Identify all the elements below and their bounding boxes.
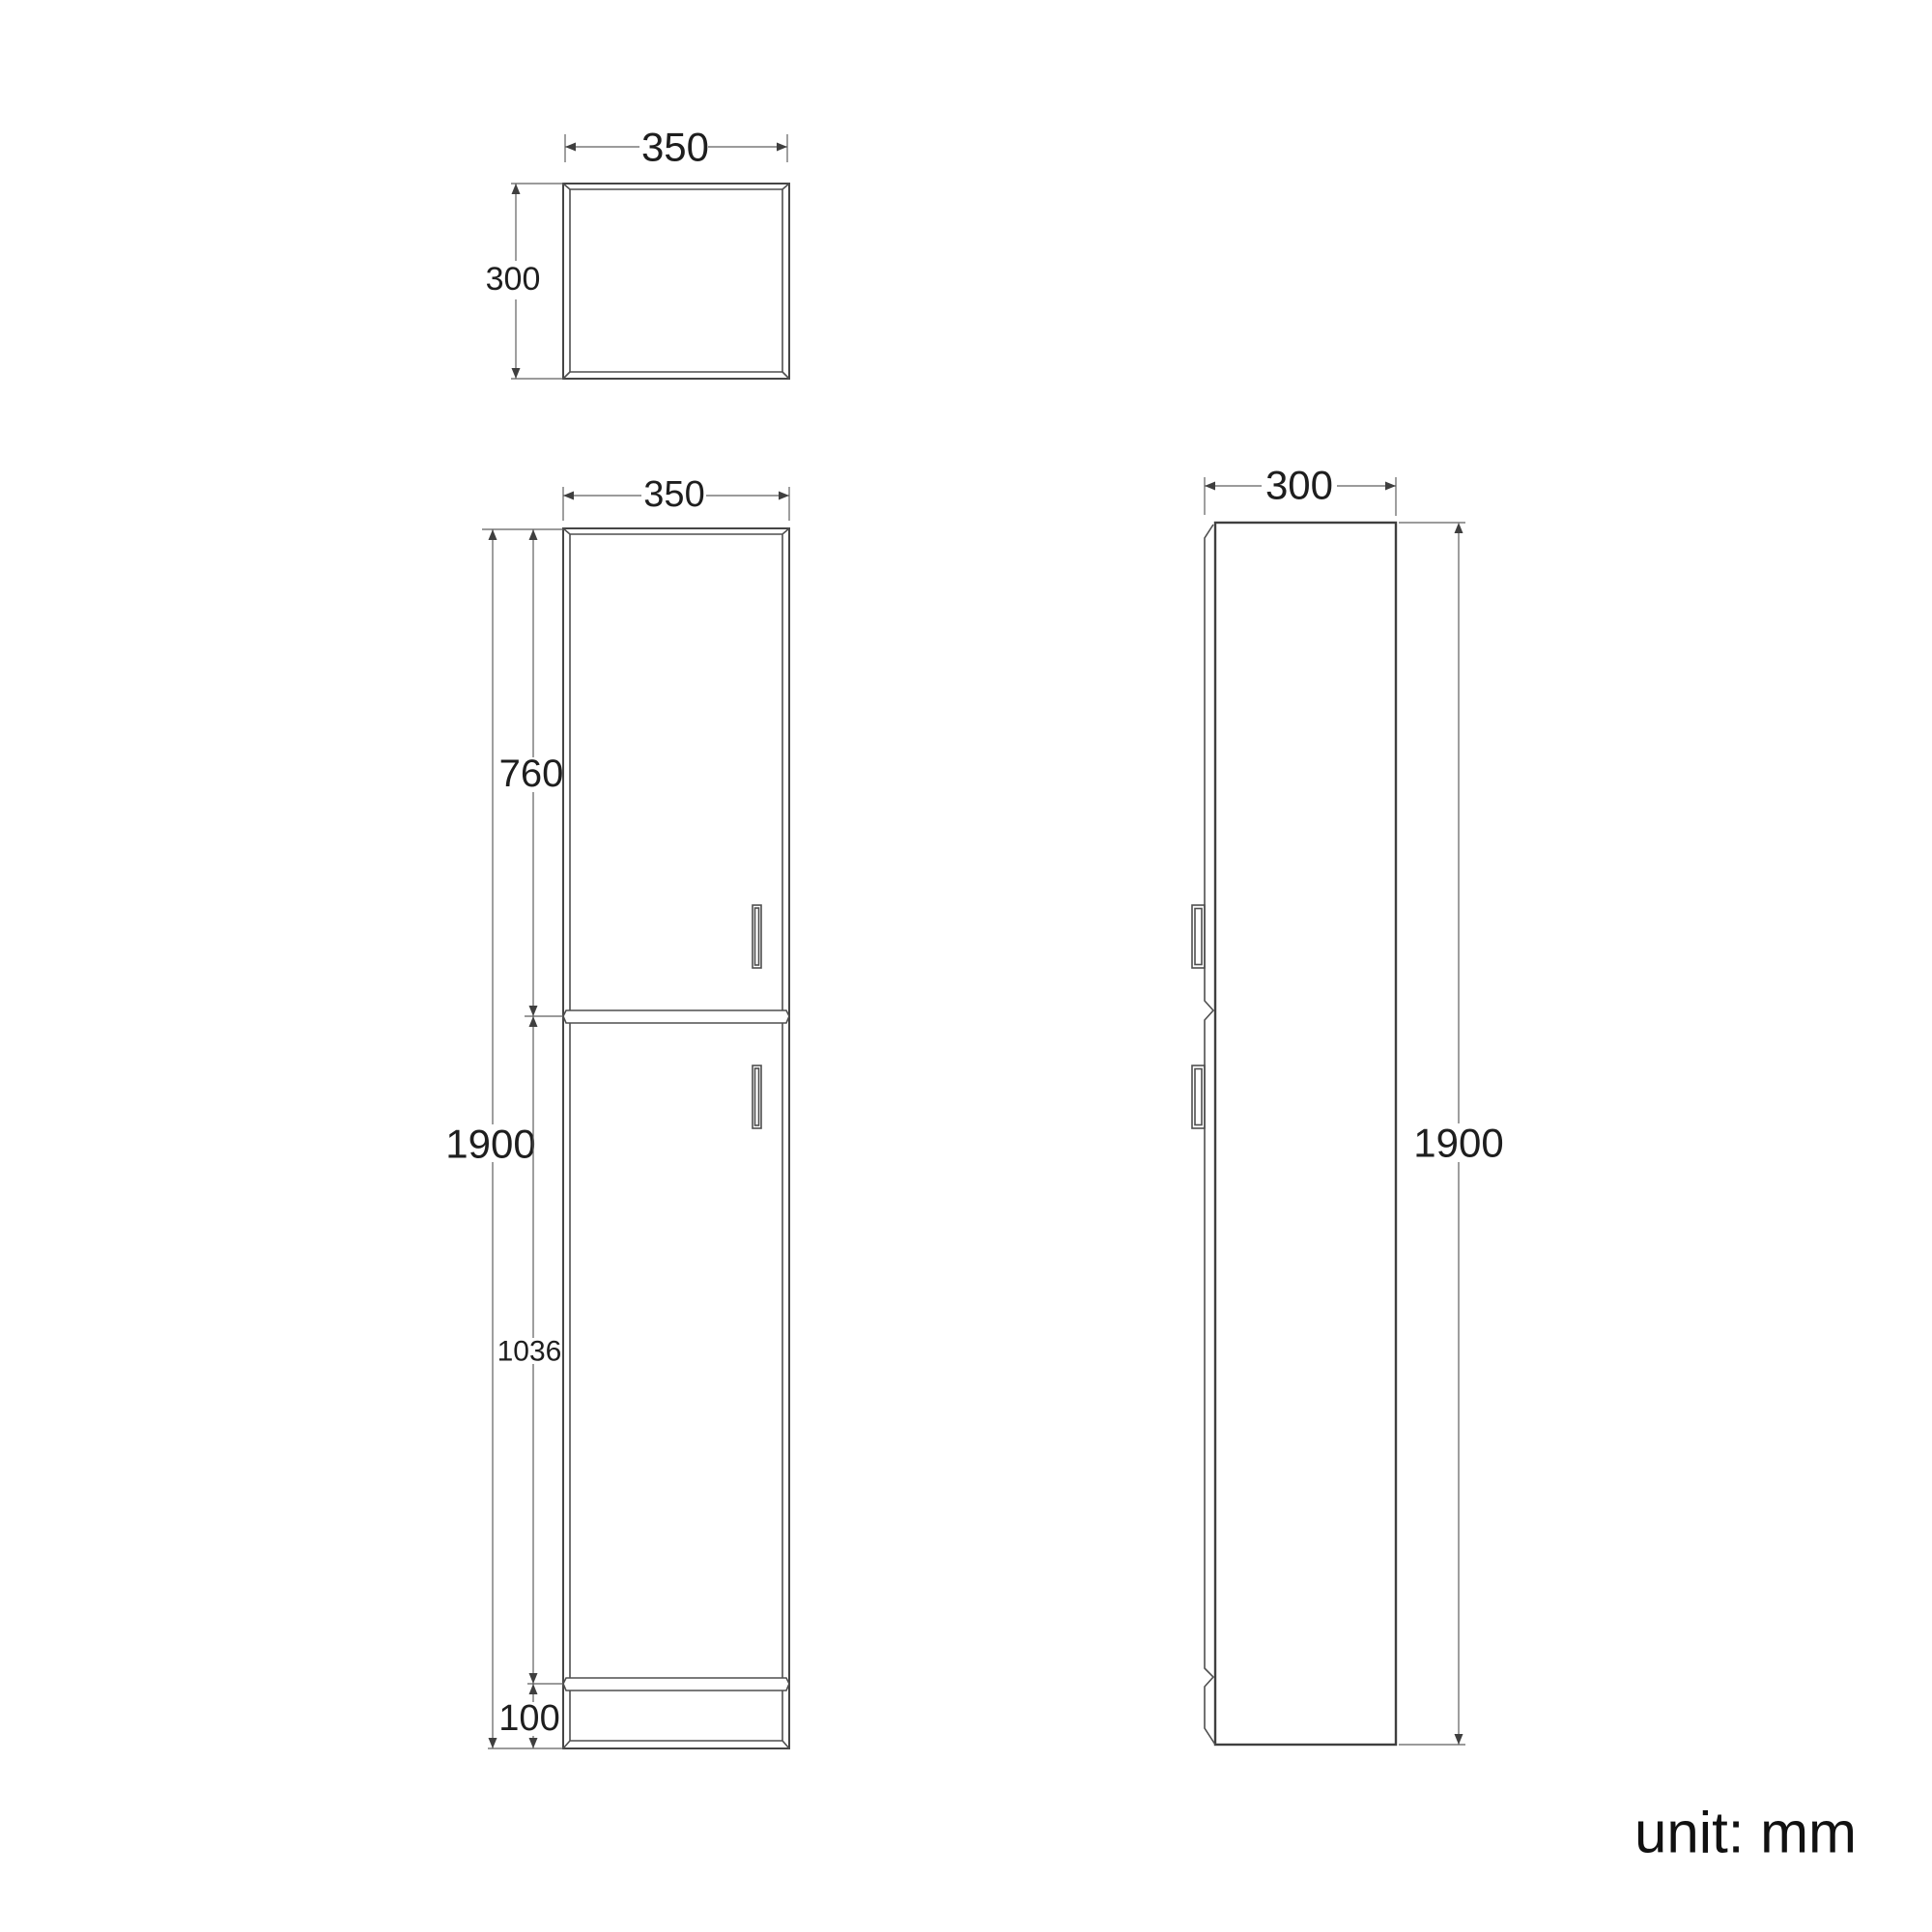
arrowhead-left bbox=[1205, 482, 1215, 491]
top-view-outline bbox=[563, 184, 789, 379]
arrowhead-left bbox=[565, 143, 576, 152]
arrowhead-up bbox=[489, 529, 497, 540]
handle-inner-line bbox=[755, 1068, 759, 1125]
top-view-corner-chamfers bbox=[563, 184, 789, 379]
top-view-inner-frame bbox=[570, 189, 782, 372]
front-view-lower-door-dimension: 1036 bbox=[497, 1016, 563, 1684]
arrowhead-down bbox=[1455, 1734, 1463, 1745]
handle-outline bbox=[1192, 905, 1205, 968]
side-view-depth-dimension: 300 bbox=[1205, 463, 1396, 517]
arrowhead-left bbox=[563, 492, 574, 500]
front-view-plinth-dimension: 100 bbox=[498, 1684, 559, 1748]
side-view-height-label: 1900 bbox=[1413, 1121, 1503, 1166]
front-view-height-label: 1900 bbox=[445, 1122, 535, 1167]
front-view-width-label: 350 bbox=[643, 474, 704, 515]
plinth-panel bbox=[563, 1690, 789, 1748]
door-divider bbox=[563, 1010, 789, 1023]
front-view-lower-door-label: 1036 bbox=[497, 1336, 562, 1368]
front-view-width-dimension: 350 bbox=[563, 474, 789, 521]
arrowhead-right bbox=[777, 143, 787, 152]
lower-door-panel bbox=[570, 1023, 782, 1678]
handle-outline bbox=[1192, 1065, 1205, 1128]
upper-door-handle bbox=[753, 905, 761, 968]
top-view: 350 300 bbox=[486, 125, 789, 380]
lower-door-handle bbox=[753, 1065, 761, 1128]
cabinet-technical-drawing: 350 300 bbox=[0, 0, 1932, 1932]
side-view-body-outline bbox=[1215, 523, 1396, 1745]
arrowhead-down bbox=[489, 1738, 497, 1748]
arrowhead-down bbox=[529, 1738, 538, 1748]
side-view-upper-handle-profile bbox=[1192, 905, 1205, 968]
handle-inner-line bbox=[1195, 909, 1202, 965]
arrowhead-up bbox=[529, 1016, 538, 1027]
arrowhead-up bbox=[529, 1684, 538, 1694]
front-view: 350 1900 760 1036 bbox=[445, 474, 789, 1748]
arrowhead-right bbox=[1385, 482, 1396, 491]
arrowhead-up bbox=[529, 529, 538, 540]
unit-note: unit: mm bbox=[1634, 1801, 1857, 1865]
front-view-upper-door-label: 760 bbox=[499, 753, 564, 795]
arrowhead-up bbox=[1455, 523, 1463, 533]
top-view-depth-label: 300 bbox=[486, 261, 541, 298]
plinth-divider bbox=[563, 1678, 789, 1690]
side-view-door-front-profile bbox=[1205, 525, 1215, 1745]
arrowhead-down bbox=[529, 1673, 538, 1684]
top-view-depth-dimension: 300 bbox=[486, 184, 563, 379]
front-view-height-dimension: 1900 bbox=[445, 529, 563, 1748]
side-view-lower-handle-profile bbox=[1192, 1065, 1205, 1128]
arrowhead-down bbox=[529, 1006, 538, 1016]
side-view-height-dimension: 1900 bbox=[1399, 523, 1504, 1745]
arrowhead-down bbox=[512, 368, 521, 379]
drawing-canvas: 350 300 bbox=[0, 0, 1932, 1932]
arrowhead-right bbox=[779, 492, 789, 500]
top-view-width-label: 350 bbox=[641, 125, 709, 170]
side-view-depth-label: 300 bbox=[1265, 463, 1333, 508]
handle-inner-line bbox=[755, 908, 759, 965]
arrowhead-up bbox=[512, 184, 521, 194]
handle-inner-line bbox=[1195, 1069, 1202, 1125]
front-view-plinth-label: 100 bbox=[498, 1698, 559, 1739]
handle-outline bbox=[753, 905, 761, 968]
top-view-width-dimension: 350 bbox=[565, 125, 787, 170]
front-view-outline bbox=[563, 528, 789, 1748]
handle-outline bbox=[753, 1065, 761, 1128]
side-view: 300 1900 bbox=[1192, 463, 1504, 1746]
front-view-upper-door-dimension: 760 bbox=[499, 529, 564, 1016]
